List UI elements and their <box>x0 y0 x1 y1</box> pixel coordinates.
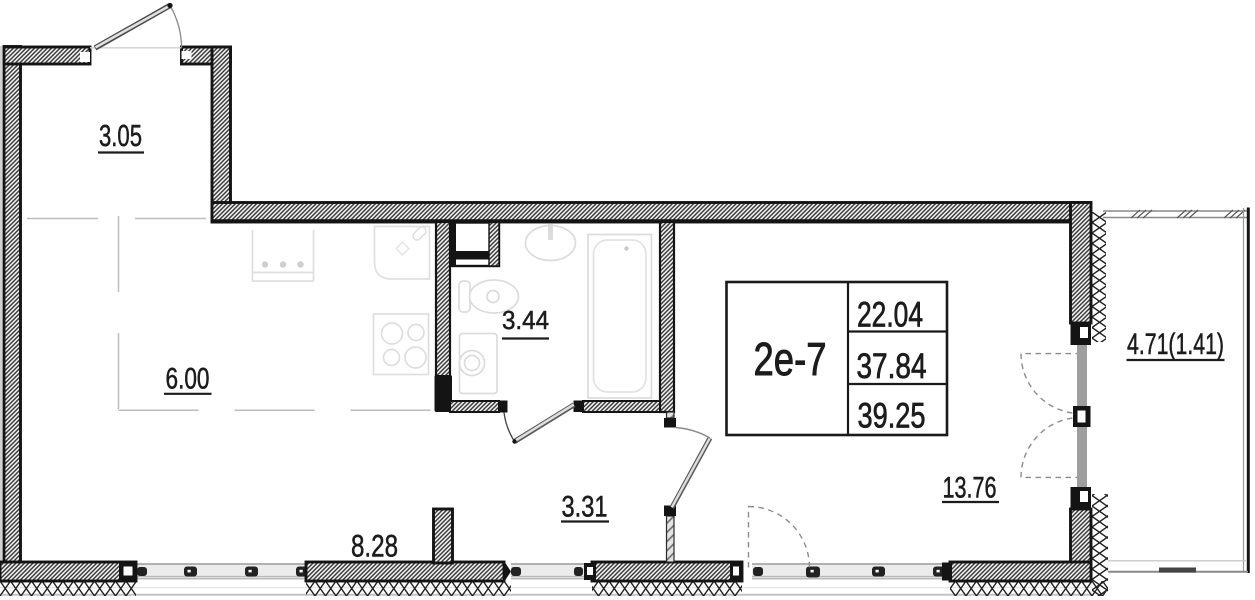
svg-text:3.05: 3.05 <box>99 118 142 153</box>
svg-text:2е-7: 2е-7 <box>754 333 827 385</box>
svg-text:4.71(1.41): 4.71(1.41) <box>1127 328 1224 361</box>
svg-text:8.28: 8.28 <box>351 528 398 564</box>
svg-text:3.44: 3.44 <box>502 305 549 335</box>
svg-text:39.25: 39.25 <box>858 397 926 436</box>
svg-text:3.31: 3.31 <box>562 491 608 524</box>
svg-text:37.84: 37.84 <box>857 347 927 386</box>
svg-text:13.76: 13.76 <box>943 472 997 505</box>
svg-text:6.00: 6.00 <box>166 363 210 396</box>
svg-text:22.04: 22.04 <box>857 296 923 335</box>
